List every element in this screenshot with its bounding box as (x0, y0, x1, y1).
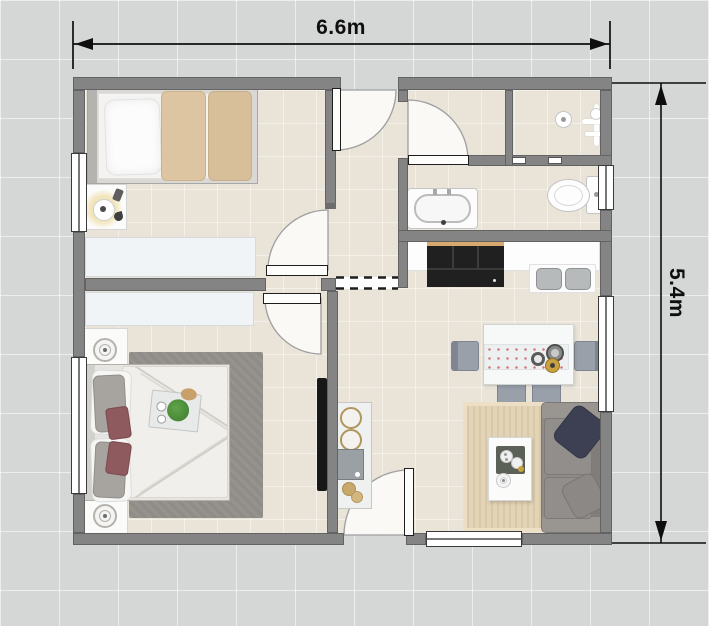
wall-segment (505, 90, 513, 166)
dried-flowers-icon (180, 388, 197, 402)
shower-door-track[interactable] (548, 157, 562, 164)
pillow (104, 98, 163, 176)
wall-segment (73, 494, 85, 533)
window[interactable] (71, 357, 87, 494)
entry-console[interactable] (333, 402, 372, 509)
wall-segment (600, 210, 612, 296)
door-leaf-entry[interactable] (332, 88, 341, 151)
door-leaf-bathroom[interactable] (408, 155, 469, 165)
faucet-mark (433, 189, 437, 195)
nightstand[interactable] (80, 184, 127, 230)
decor-plate-icon (340, 429, 362, 451)
decor-bowl-icon (351, 491, 363, 503)
wall-segment (398, 230, 612, 242)
wall-segment (73, 77, 341, 90)
tub-drain (441, 220, 446, 225)
height-dimension-label: 5.4m (664, 268, 688, 318)
double-sink[interactable] (529, 264, 596, 293)
duvet (122, 366, 228, 498)
dining-table[interactable] (483, 324, 574, 385)
wall-end-cap (325, 203, 336, 209)
wall-segment (85, 278, 266, 291)
shower-drain-icon (555, 111, 572, 128)
wall-segment (468, 155, 612, 166)
dining-chair[interactable] (451, 341, 479, 371)
window[interactable] (71, 153, 87, 232)
coffee-table[interactable] (488, 437, 532, 501)
toilet-bowl[interactable] (547, 179, 590, 212)
pillow-maroon (105, 441, 132, 477)
sofa[interactable] (541, 402, 605, 533)
wall-segment (73, 533, 344, 545)
door-leaf-bedroom-top[interactable] (266, 265, 328, 276)
plant-icon (166, 398, 190, 422)
wall-segment (398, 77, 612, 90)
wall-segment (600, 412, 612, 533)
wall-segment (321, 278, 336, 291)
drain-center (561, 117, 566, 122)
storage-box (337, 449, 364, 480)
decor-plate-icon (340, 407, 362, 429)
gold-dish-icon (518, 466, 524, 472)
sofa-armrest (542, 517, 604, 532)
lamp-center (103, 348, 107, 352)
floor-plan-canvas: 6.6m 5.4m (0, 0, 709, 626)
wall-segment (398, 90, 408, 102)
blanket-panel (161, 91, 206, 181)
wall-segment (73, 90, 85, 153)
wall-segment (398, 158, 408, 288)
lamp-center (100, 206, 106, 212)
window[interactable] (426, 531, 522, 547)
bowl-icon (531, 352, 545, 366)
lamp-center (103, 514, 107, 518)
cup-icon (156, 401, 167, 412)
cup-icon (157, 414, 167, 424)
faucet-mark (447, 189, 451, 195)
wall-tv[interactable] (317, 378, 327, 491)
box-knob (355, 472, 360, 477)
window[interactable] (598, 296, 614, 412)
plant-tray[interactable] (148, 389, 202, 432)
width-dimension-label: 6.6m (241, 16, 441, 40)
wall-segment (327, 291, 338, 533)
window[interactable] (598, 165, 614, 210)
bathtub[interactable] (407, 188, 478, 229)
blanket-panel (208, 91, 252, 181)
wardrobe-bottom-bedroom[interactable] (85, 292, 254, 326)
door-leaf-back[interactable] (404, 468, 414, 536)
bed-headboard (88, 89, 97, 183)
single-bed[interactable] (87, 88, 258, 184)
pillow-maroon (105, 406, 132, 441)
wall-segment (522, 533, 612, 545)
door-leaf-bedroom-bottom[interactable] (263, 293, 321, 304)
wardrobe-top-bedroom[interactable] (85, 237, 256, 277)
wall-segment (600, 90, 612, 165)
shower-door-track[interactable] (512, 157, 526, 164)
cooktop-oven[interactable] (427, 246, 504, 287)
oven-light (493, 279, 496, 282)
double-bed[interactable] (84, 364, 230, 501)
decor-item (112, 188, 124, 202)
wall-segment (73, 232, 85, 357)
